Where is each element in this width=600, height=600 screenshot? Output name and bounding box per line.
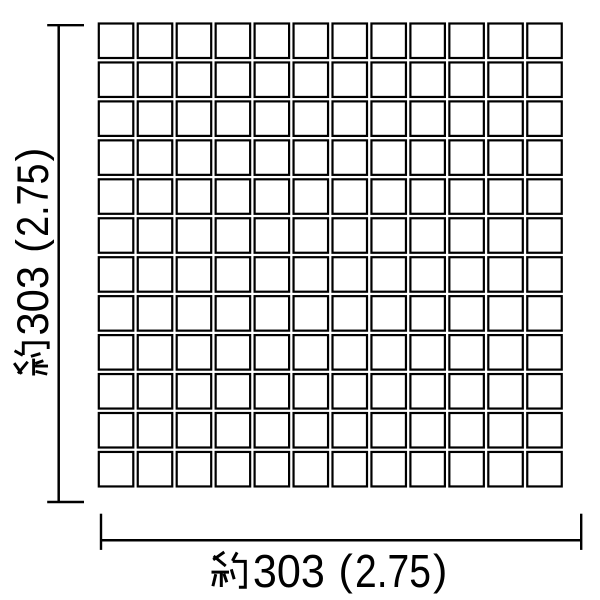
svg-text:303: 303 [253,545,325,597]
svg-text:2.75: 2.75 [7,163,58,236]
svg-text:): ) [8,148,55,162]
svg-text:(: ( [8,239,55,253]
svg-text:2.75: 2.75 [355,545,431,597]
svg-text:(: ( [339,547,354,595]
svg-text:): ) [433,547,447,595]
svg-text:303: 303 [7,266,58,336]
